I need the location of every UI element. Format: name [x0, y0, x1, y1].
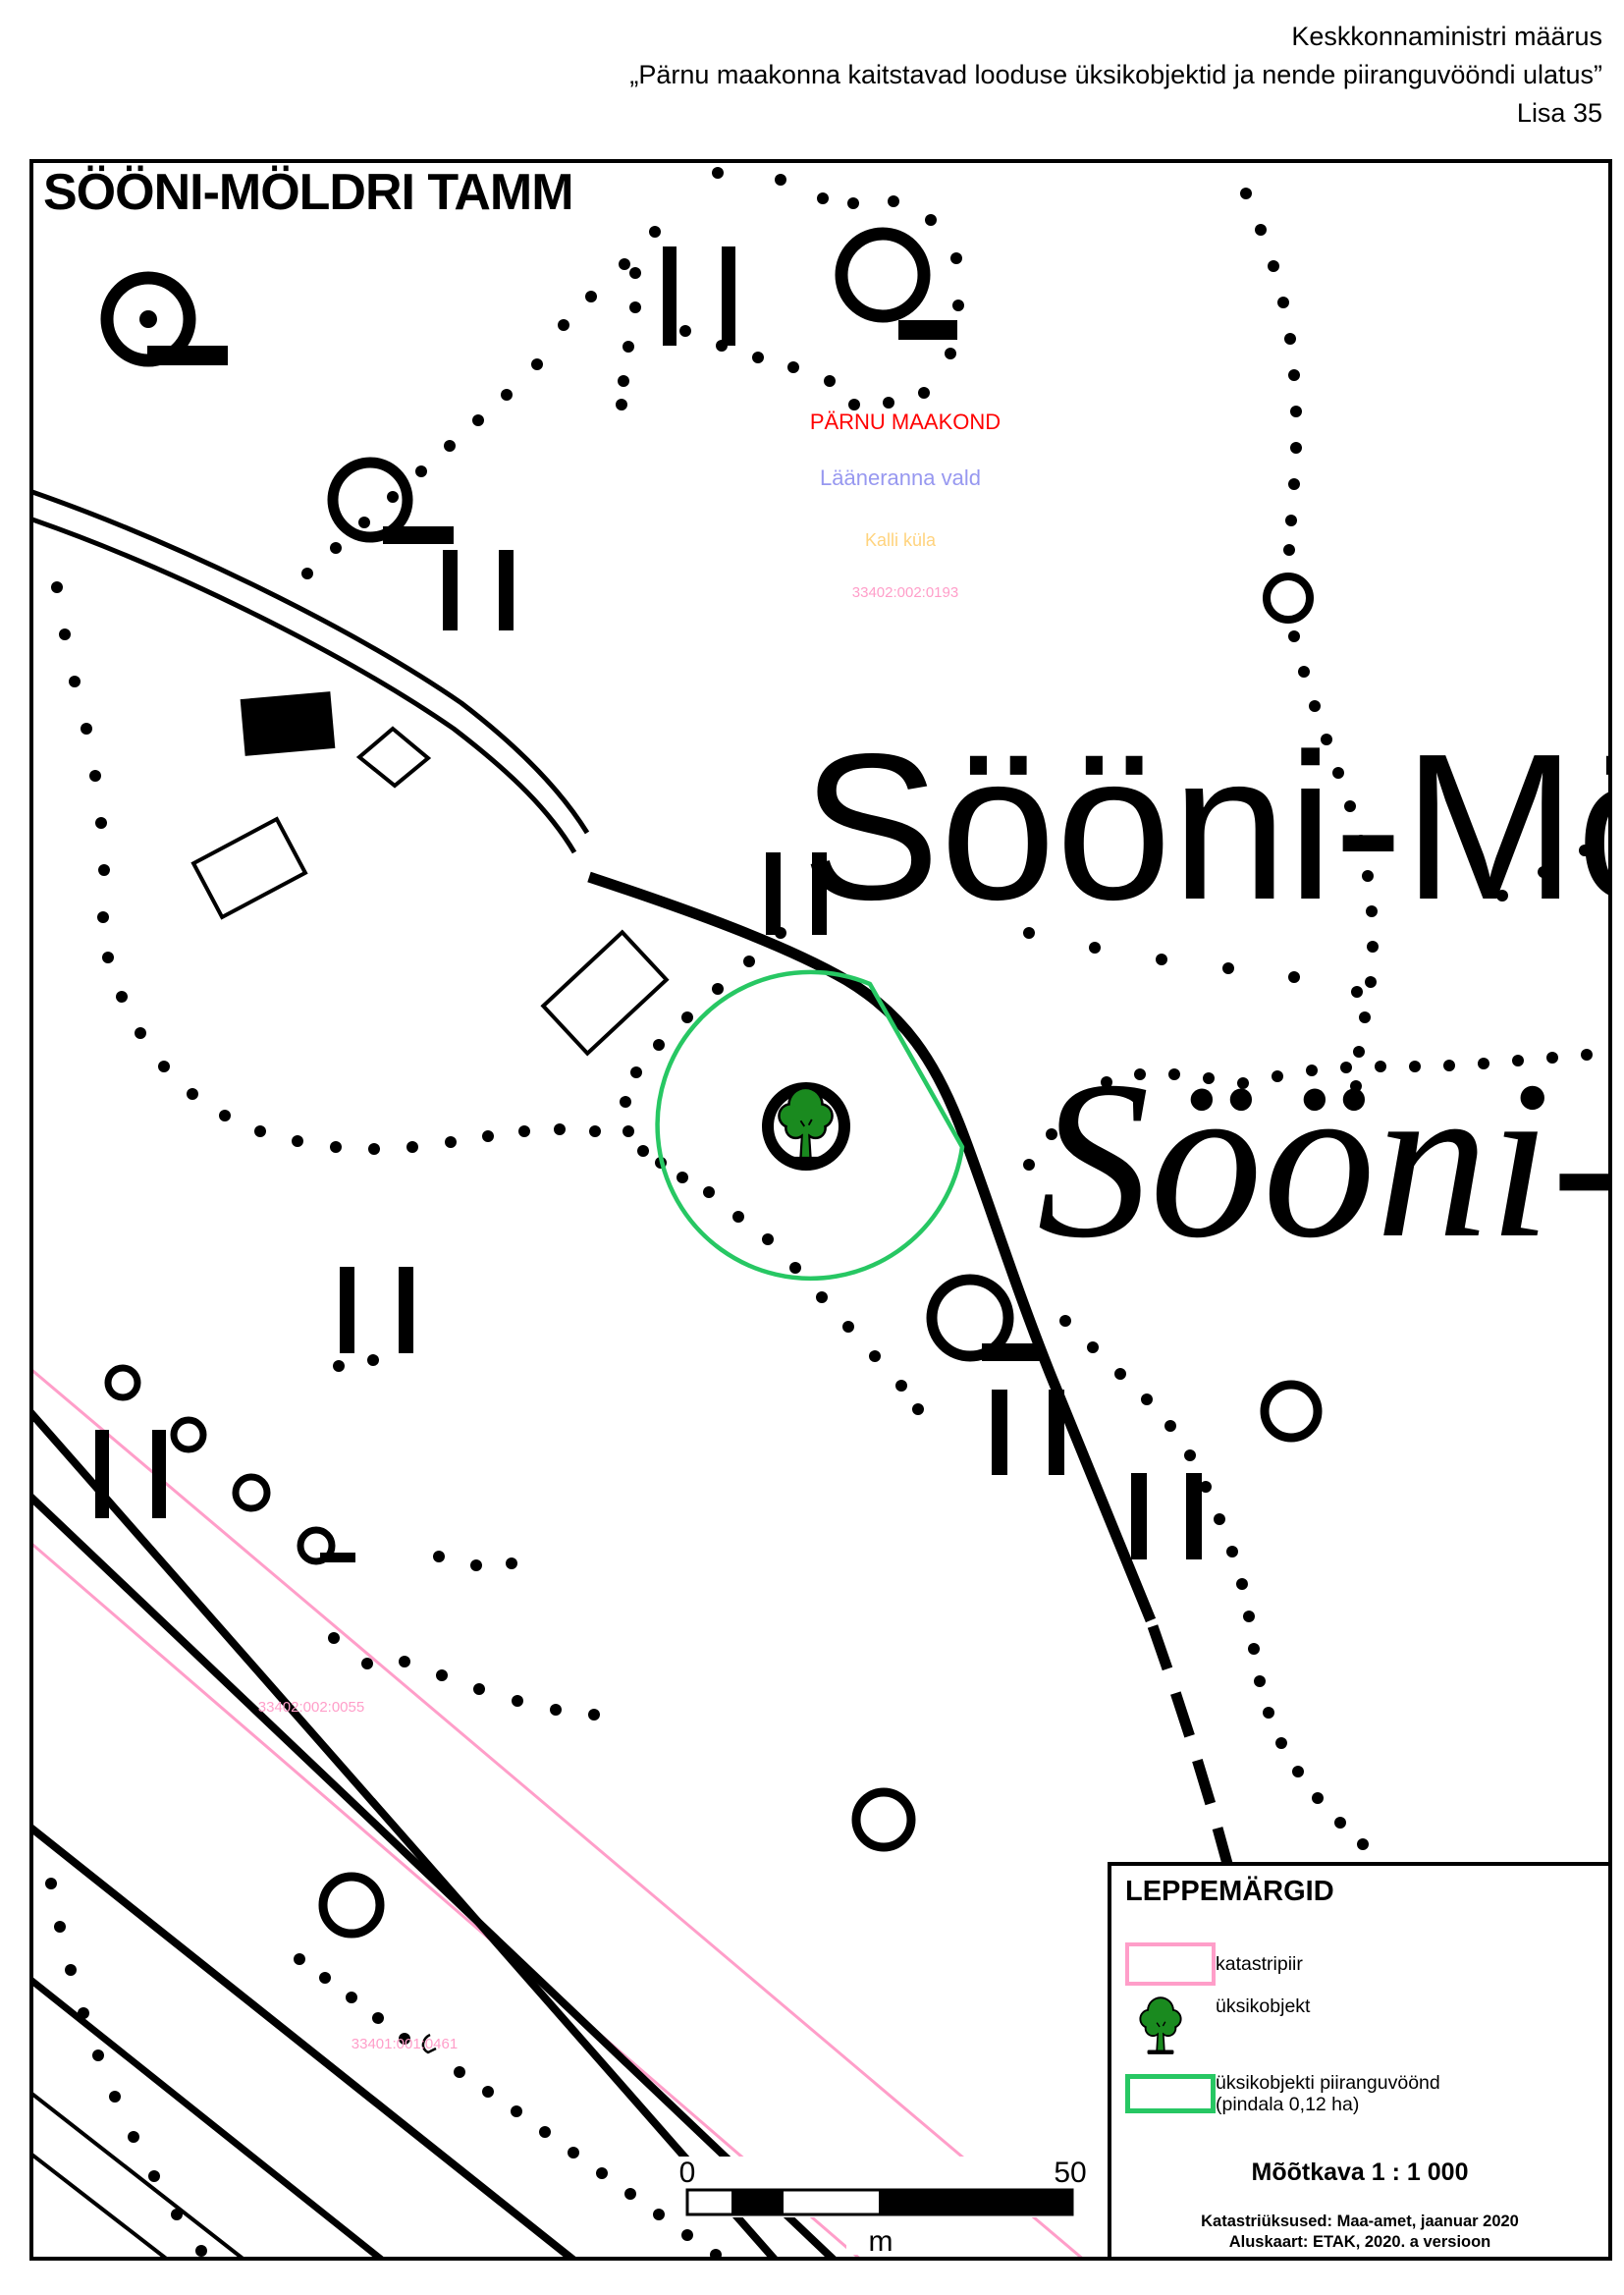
header-line-3: Lisa 35	[629, 94, 1602, 133]
legend-item-label: katastripiir	[1216, 1953, 1303, 1975]
document-header: Keskkonnaministri määrus „Pärnu maakonna…	[629, 18, 1602, 133]
scalebar-unit-label: m	[869, 2225, 893, 2257]
legend-item-label: üksikobjekti piiranguvöönd (pindala 0,12…	[1216, 2072, 1440, 2115]
county-label: PÄRNU MAAKOND	[810, 410, 1001, 434]
map-title: SÖÖNI-MÖLDRI TAMM	[43, 164, 573, 221]
legend-source-line1: Katastriüksused: Maa-amet, jaanuar 2020	[1111, 2212, 1608, 2232]
municipality-label: Lääneranna vald	[820, 465, 981, 490]
scalebar-start-label: 0	[679, 2157, 696, 2189]
legend-source-text: Katastriüksused: Maa-amet, jaanuar 2020 …	[1111, 2212, 1608, 2253]
legend-source-line2: Aluskaart: ETAK, 2020. a versioon	[1111, 2232, 1608, 2253]
cadastral-label-sw2: 33401:001:0461	[352, 2036, 458, 2052]
scalebar-end-label: 50	[1054, 2157, 1086, 2189]
village-label: Kalli küla	[865, 530, 937, 550]
map-frame: 0 50 m	[29, 159, 1612, 2261]
protection-zone-swatch	[1125, 2074, 1216, 2113]
cadastral-boundary-lines	[33, 1368, 1085, 2257]
cadastral-label-sw1: 33402:002:0055	[258, 1699, 364, 1716]
place-name-large: Sööni-Mö	[801, 710, 1608, 943]
tree-icon	[1137, 1995, 1184, 2058]
cadastral-boundary-swatch	[1125, 1942, 1216, 1986]
legend-box: LEPPEMÄRGID katastripiir üksikobjekt üks…	[1108, 1862, 1612, 2261]
legend-title: LEPPEMÄRGID	[1125, 1876, 1334, 1908]
header-line-2: „Pärnu maakonna kaitstavad looduse üksik…	[629, 56, 1602, 94]
building-symbols	[193, 691, 667, 1054]
legend-item-label: üksikobjekt	[1216, 1995, 1310, 2017]
legend-scale-text: Mõõtkava 1 : 1 000	[1111, 2158, 1608, 2187]
place-name-large-italic: Sööni-	[1037, 1034, 1608, 1284]
scale-bar: 0 50 m	[676, 2157, 1088, 2257]
legend-item-cadastral: katastripiir	[1125, 1942, 1303, 1986]
legend-item-zone: üksikobjekti piiranguvöönd (pindala 0,12…	[1125, 2072, 1440, 2115]
document-page: Keskkonnaministri määrus „Pärnu maakonna…	[0, 0, 1624, 2295]
legend-item-tree: üksikobjekt	[1125, 1995, 1310, 2017]
cadastral-label-center: 33402:002:0193	[852, 584, 958, 601]
header-line-1: Keskkonnaministri määrus	[629, 18, 1602, 56]
